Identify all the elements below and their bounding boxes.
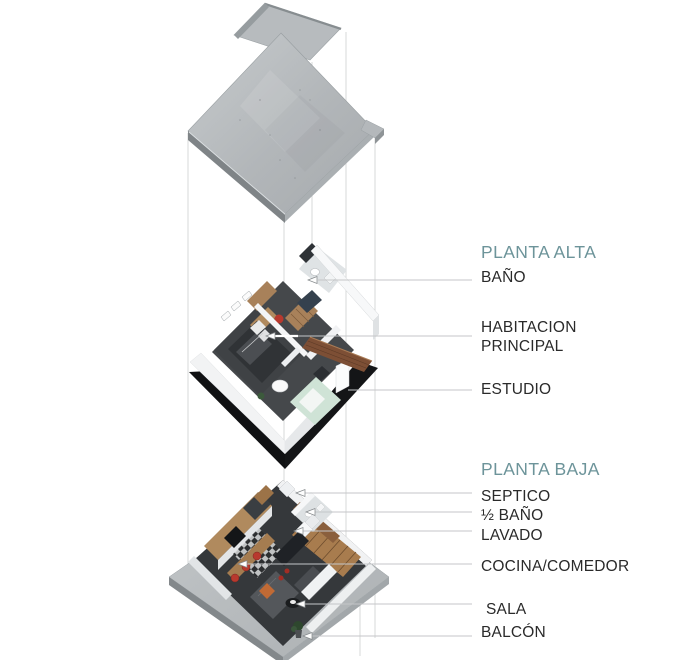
ground-floor-render <box>169 480 389 660</box>
label-habitacion-principal: HABITACION PRINCIPAL <box>481 319 601 356</box>
exploded-floor-plan-page: { "title": "Exploded axonometric house p… <box>0 0 682 660</box>
heading-planta-alta: PLANTA ALTA <box>481 243 596 262</box>
label-sala: SALA <box>486 601 646 620</box>
label-banio: BAÑO <box>481 269 641 288</box>
label-balcon: BALCÓN <box>481 624 641 643</box>
vanity <box>272 380 288 392</box>
wall-frames <box>221 291 252 321</box>
label-septico: SEPTICO <box>481 488 641 507</box>
plant <box>258 393 265 400</box>
heading-planta-baja: PLANTA BAJA <box>481 460 600 479</box>
label-estudio: ESTUDIO <box>481 381 641 400</box>
toilet <box>311 269 320 276</box>
label-medio-banio: ½ BAÑO <box>481 507 641 526</box>
roof-slab <box>188 3 384 223</box>
label-cocina-comedor: COCINA/COMEDOR <box>481 558 661 577</box>
label-lavado: LAVADO <box>481 527 641 546</box>
